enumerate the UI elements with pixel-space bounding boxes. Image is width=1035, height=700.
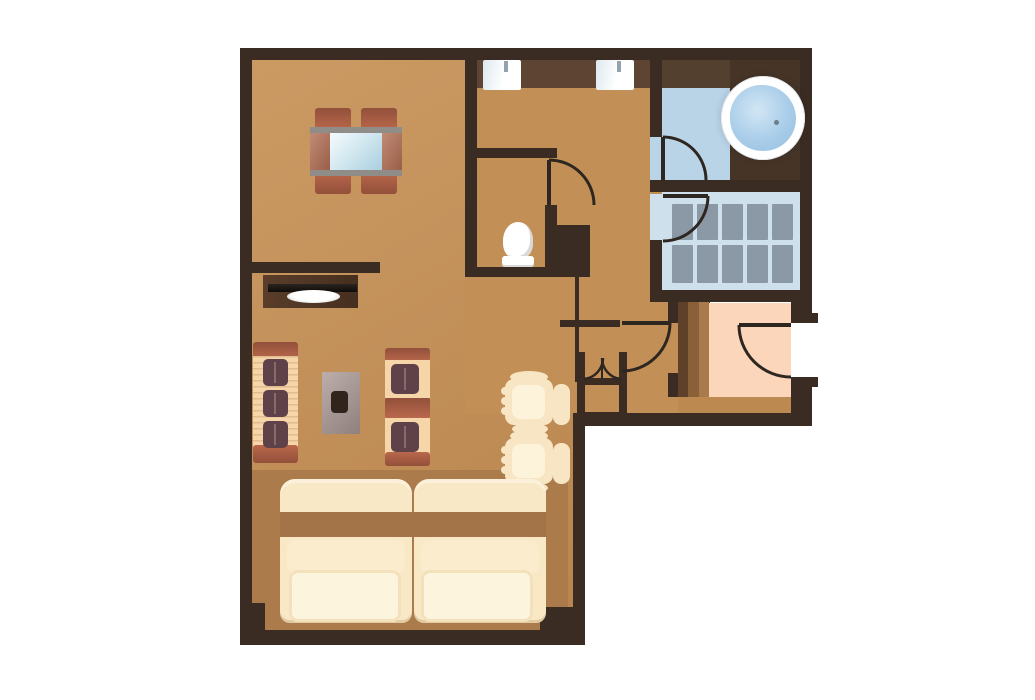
lounge-chair-seat <box>512 385 545 419</box>
entry-wood-floor <box>678 302 709 397</box>
shower-tile <box>747 245 768 283</box>
wall-bathroom-bottom <box>650 180 812 192</box>
side-table <box>385 398 430 418</box>
sofa-cushion <box>263 421 288 448</box>
bathroom-door-threshold <box>650 137 662 180</box>
blanket-band <box>280 512 546 537</box>
sofa-cushion <box>263 390 288 417</box>
bathroom-counter <box>662 58 730 88</box>
wall-hall-entry-top <box>668 302 678 323</box>
lounge-chair-tab <box>501 407 510 415</box>
bathroom-floor <box>662 88 730 180</box>
wall-hall-entry-bottom <box>668 373 678 397</box>
lounge-chair-tab <box>501 397 510 405</box>
shower-tile <box>672 204 693 240</box>
bed-lower-cushion <box>421 540 539 574</box>
shower-tile <box>697 245 718 283</box>
armchair-armrest <box>385 452 430 466</box>
wall-bottom <box>240 630 585 645</box>
lounge-chair-armrest <box>553 384 570 425</box>
wall-wc-top <box>465 148 557 158</box>
closet-stub-right <box>619 352 627 380</box>
coffee-table-center <box>331 391 348 413</box>
faucet <box>504 61 508 72</box>
pillow <box>289 570 401 622</box>
toilet-bowl <box>503 222 533 259</box>
sink <box>596 60 634 90</box>
bed-lower-cushion <box>287 540 405 574</box>
lounge-chair-tab <box>501 466 510 474</box>
lounge-chair-tab <box>501 387 510 395</box>
toilet-tank <box>502 256 534 267</box>
dining-table <box>310 127 402 176</box>
armchair-cushion <box>391 422 419 452</box>
shower-room-door-threshold <box>650 194 662 240</box>
armchair-cushion <box>391 364 419 394</box>
wall-wc-bottom <box>465 267 590 277</box>
lounge-chair-tab <box>501 446 510 454</box>
wall-left <box>240 48 252 645</box>
shower-tile <box>772 245 793 283</box>
entry-hall-floor <box>709 303 791 397</box>
wall-top <box>240 48 812 60</box>
wall-entry-right-top <box>791 302 803 323</box>
wall-notch-bottom-left <box>240 603 265 645</box>
lounge-chair-armrest <box>553 443 570 484</box>
wall-shower-bottom <box>650 290 812 302</box>
pillow <box>421 570 533 622</box>
shower-tile <box>722 204 743 240</box>
wall-wc-duct-block <box>545 225 590 267</box>
closet-interior <box>585 385 619 412</box>
bathtub-drain <box>774 120 779 125</box>
shower-tile <box>722 245 743 283</box>
tv-glare-ellipse <box>287 290 340 303</box>
wall-living-hall <box>465 48 477 277</box>
table-edge <box>310 170 402 176</box>
closet-stub-left <box>577 352 585 380</box>
shower-tile <box>772 204 793 240</box>
shower-tile <box>697 204 718 240</box>
sink <box>483 60 521 90</box>
wall-bath-hall-upper <box>650 60 662 137</box>
shower-tile <box>747 204 768 240</box>
tv-wall-stub <box>252 262 380 273</box>
wall-entry-right-bottom <box>791 377 803 426</box>
sofa-cushion <box>263 359 288 386</box>
wall-hall-low <box>560 320 620 327</box>
lounge-chair-tab <box>501 456 510 464</box>
entry-floor-strip <box>678 397 791 414</box>
lounge-chair-seat <box>512 444 545 478</box>
bathtub-water <box>730 85 796 151</box>
faucet <box>617 61 621 72</box>
shower-tile <box>672 245 693 283</box>
table-glass-top <box>330 133 382 170</box>
wall-bedroom-right <box>573 413 585 645</box>
table-side <box>310 133 330 170</box>
shower-tile-grid <box>672 204 793 283</box>
floor-plan-canvas <box>0 0 1035 700</box>
table-side <box>382 133 402 170</box>
